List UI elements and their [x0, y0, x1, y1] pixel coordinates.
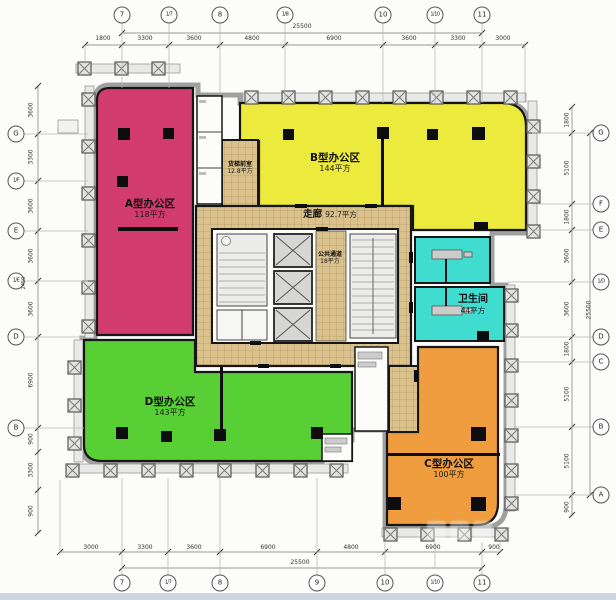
axis-right-d: D — [593, 329, 610, 346]
dim-left-0: 3600 — [28, 102, 35, 117]
public-passage-area: 18平方 — [310, 258, 350, 265]
dim-bottom-2: 3600 — [186, 544, 201, 551]
dim-left-6: 900 — [28, 433, 35, 444]
dim-right-6: 5100 — [564, 386, 571, 401]
dim-bottom-3: 6900 — [260, 544, 275, 551]
freight-lobby-area: 12.8平方 — [219, 168, 261, 175]
core — [212, 229, 398, 343]
axis-bottom-11: 11 — [474, 575, 491, 592]
freight-lobby-name: 货梯前室 — [219, 161, 261, 168]
watermark-blob — [473, 521, 492, 540]
dim-right-1: 5100 — [564, 160, 571, 175]
axis-bottom-8: 8 — [212, 575, 229, 592]
zone-b-name: B型办公区 — [290, 152, 380, 164]
zone-c-label: C型办公区 100平方 — [404, 458, 494, 480]
corridor-label: 走廊 92.7平方 — [286, 209, 374, 221]
zone-d-name: D型办公区 — [125, 396, 215, 408]
corridor-name: 走廊 — [303, 209, 322, 221]
dim-top-1: 3300 — [137, 35, 152, 42]
dim-right-3: 3600 — [564, 248, 571, 263]
axis-left-d: D — [8, 329, 25, 346]
dim-left-4: 3600 — [28, 301, 35, 316]
axis-top-1-8: 1/8 — [277, 7, 294, 24]
axis-right-b: B — [593, 419, 610, 436]
dim-right-4: 3600 — [564, 301, 571, 316]
axis-bottom-9: 9 — [309, 575, 326, 592]
dim-left-3: 3600 — [28, 248, 35, 263]
dim-left-8: 900 — [28, 505, 35, 516]
dim-left-1: 3300 — [28, 149, 35, 164]
axis-right-e: E — [593, 222, 610, 239]
restroom-area: 44平方 — [433, 306, 513, 316]
floor-plan-canvas: A型办公区 118平方 B型办公区 144平方 D型办公区 143平方 C型办公… — [0, 0, 616, 600]
dim-right-8: 900 — [564, 501, 571, 512]
dim-bottom-overall: 25500 — [290, 559, 309, 566]
restroom-label: 卫生间 44平方 — [433, 294, 513, 316]
floor-plan-drawing — [0, 0, 616, 600]
corridor-connector — [389, 366, 418, 432]
axis-left-b: B — [8, 420, 25, 437]
zone-c-name: C型办公区 — [404, 458, 494, 470]
dim-top-7: 3000 — [495, 35, 510, 42]
axis-top-10: 10 — [375, 7, 392, 24]
axis-left-1-f: 1/F — [8, 173, 25, 190]
zone-a-area: 118平方 — [105, 210, 195, 220]
dim-top-overall: 25500 — [292, 23, 311, 30]
axis-right-g: G — [593, 125, 610, 142]
axis-bottom-10: 10 — [377, 575, 394, 592]
bottom-edge-strip — [0, 593, 616, 600]
axis-right-c: C — [593, 354, 610, 371]
watermark-blob — [450, 521, 469, 540]
dim-bottom-5: 6900 — [425, 544, 440, 551]
dim-right-0: 1800 — [564, 112, 571, 127]
axis-bottom-7: 7 — [114, 575, 131, 592]
dim-right-overall: 25500 — [586, 300, 593, 319]
dim-top-3: 4800 — [244, 35, 259, 42]
axis-top-7: 7 — [114, 7, 131, 24]
dim-left-2: 3600 — [28, 198, 35, 213]
axis-bottom-1-10: 1/10 — [427, 575, 444, 592]
zone-b-label: B型办公区 144平方 — [290, 152, 380, 174]
axis-top-1-10: 1/10 — [427, 7, 444, 24]
zone-d-area: 143平方 — [125, 408, 215, 418]
dim-top-6: 3300 — [450, 35, 465, 42]
axis-left-e: E — [8, 223, 25, 240]
zone-a-name: A型办公区 — [105, 198, 195, 210]
axis-bottom-1-7: 1/7 — [160, 575, 177, 592]
zone-d-label: D型办公区 143平方 — [125, 396, 215, 418]
dim-left-note: 2450 — [21, 277, 27, 290]
axis-right-1-d: 1/D — [593, 274, 610, 291]
public-passage-label: 公共通道 18平方 — [310, 251, 350, 265]
corridor-area: 92.7平方 — [325, 210, 357, 220]
public-passage-name: 公共通道 — [310, 251, 350, 258]
dim-top-2: 3600 — [186, 35, 201, 42]
dim-top-0: 1800 — [95, 35, 110, 42]
dim-top-4: 6900 — [326, 35, 341, 42]
dim-right-7: 5100 — [564, 453, 571, 468]
zone-a-label: A型办公区 118平方 — [105, 198, 195, 220]
dim-bottom-1: 3300 — [137, 544, 152, 551]
dim-bottom-4: 4800 — [343, 544, 358, 551]
dim-right-2: 1800 — [564, 209, 571, 224]
dim-top-5: 3600 — [401, 35, 416, 42]
zone-c-area: 100平方 — [404, 470, 494, 480]
dim-left-7: 3300 — [28, 462, 35, 477]
dim-bottom-6: 900 — [488, 544, 499, 551]
restroom-upper-fill — [415, 237, 490, 283]
dim-bottom-0: 3000 — [83, 544, 98, 551]
zone-b-area: 144平方 — [290, 164, 380, 174]
dim-right-5: 1800 — [564, 341, 571, 356]
freight-lobby-label: 货梯前室 12.8平方 — [219, 161, 261, 175]
axis-right-f: F — [593, 196, 610, 213]
axis-top-1-7: 1/7 — [161, 7, 178, 24]
axis-left-g: G — [8, 126, 25, 143]
axis-top-11: 11 — [474, 7, 491, 24]
axis-top-8: 8 — [212, 7, 229, 24]
watermark-blob — [427, 521, 446, 540]
axis-right-a: A — [593, 487, 610, 504]
restroom-name: 卫生间 — [433, 294, 513, 306]
dim-left-5: 6900 — [28, 372, 35, 387]
